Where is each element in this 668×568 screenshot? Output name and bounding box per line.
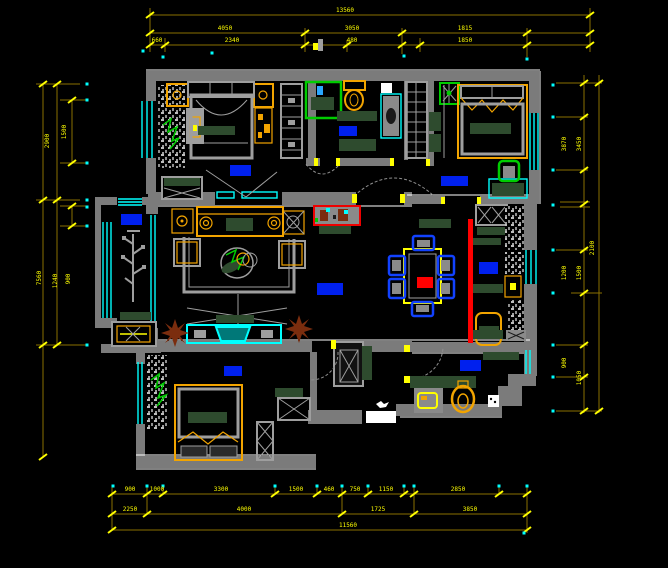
toilet-tank xyxy=(344,81,365,90)
dim-label: 900 xyxy=(125,486,136,493)
dim-label: 1500 xyxy=(289,486,304,493)
wall-hatch-texture xyxy=(505,206,524,250)
washer-box xyxy=(381,83,392,93)
armchair-left xyxy=(174,239,200,266)
dimensions-right: 3870 3450 2100 1200 1500 900 1050 xyxy=(552,75,604,414)
room-bedroom-right xyxy=(429,83,527,204)
entry-door-threshold xyxy=(366,411,396,423)
sofa-cushion xyxy=(226,218,253,231)
dim-label: 3050 xyxy=(345,25,360,32)
red-divider xyxy=(468,219,473,343)
room-bathroom xyxy=(306,81,434,196)
dim-label: 1815 xyxy=(458,25,473,32)
dim-label: 3870 xyxy=(561,136,568,151)
bird-icon xyxy=(376,401,389,408)
dimensions-left: 2900 1500 7560 1240 900 xyxy=(36,81,89,460)
room-master-bedroom xyxy=(158,82,302,199)
section-marker xyxy=(318,39,323,51)
dim-label: 1500 xyxy=(576,265,583,280)
dim-label: 2100 xyxy=(589,240,596,255)
tree-icon xyxy=(123,231,144,302)
dim-label: 13560 xyxy=(336,7,354,14)
bed-pillow xyxy=(188,412,227,423)
dim-label: 900 xyxy=(65,273,72,284)
dim-label: 480 xyxy=(347,37,358,44)
room-label-bathroom xyxy=(339,126,357,136)
dim-label: 1150 xyxy=(379,486,394,493)
room-pantry-column xyxy=(473,205,526,345)
floorplan-drawing: 13560 4050 3050 1815 660 2340 480 1850 2… xyxy=(0,0,668,568)
dim-label: 1000 xyxy=(150,486,165,493)
dim-label: 2850 xyxy=(451,486,466,493)
dim-label: 2900 xyxy=(44,133,51,148)
cad-canvas[interactable]: 13560 4050 3050 1815 660 2340 480 1850 2… xyxy=(0,0,668,568)
small-appliance xyxy=(488,395,499,407)
dim-label: 1850 xyxy=(458,37,473,44)
dim-label: 2340 xyxy=(225,37,240,44)
dim-label: 460 xyxy=(324,486,335,493)
plant-brown-left xyxy=(161,319,189,347)
dim-label: 3300 xyxy=(214,486,229,493)
dim-label: 1500 xyxy=(61,124,68,139)
dim-label: 660 xyxy=(152,37,163,44)
dining-table xyxy=(404,249,441,303)
dim-label: 1200 xyxy=(561,265,568,280)
dim-label: 1050 xyxy=(576,370,583,385)
wall-hatch-texture xyxy=(158,85,186,168)
room-balcony xyxy=(112,214,156,346)
room-bedroom-bottom xyxy=(146,355,310,460)
room-label-living xyxy=(317,283,343,295)
bed-pillow xyxy=(198,126,235,135)
room-dining xyxy=(389,219,473,343)
dim-label: 4000 xyxy=(237,506,252,513)
room-label-pantry xyxy=(479,262,498,274)
dim-label: 7560 xyxy=(36,270,43,285)
wall-hatch-texture xyxy=(146,355,167,430)
tv-icon xyxy=(216,327,250,341)
sink-basin xyxy=(386,108,396,124)
room-label-bedroom-bottom xyxy=(224,366,242,376)
dimensions-bottom: 900 1000 3300 1500 460 750 1150 2850 225… xyxy=(108,485,531,535)
wall-hatch-texture xyxy=(505,252,524,274)
room-label-bedroom-right xyxy=(441,176,468,186)
shoe-cabinet-top xyxy=(476,205,507,225)
dimensions-top: 13560 4050 3050 1815 660 2340 480 1850 xyxy=(142,7,595,61)
wardrobe-side xyxy=(257,422,273,460)
counter-top xyxy=(483,352,519,360)
dim-label: 900 xyxy=(561,357,568,368)
dim-label: 3450 xyxy=(576,136,583,151)
room-label-balcony xyxy=(121,214,142,225)
shower-head xyxy=(317,86,323,95)
armchair-right xyxy=(279,241,305,268)
dim-label: 750 xyxy=(350,486,361,493)
sideboard xyxy=(419,219,451,228)
dim-label: 1240 xyxy=(52,273,59,288)
dim-label: 3850 xyxy=(463,506,478,513)
toilet-icon xyxy=(345,90,363,110)
room-label-master-bedroom xyxy=(230,165,251,176)
bed-pillow xyxy=(470,123,511,134)
table-runner xyxy=(417,277,433,288)
dim-label: 1725 xyxy=(371,506,386,513)
shoe-cabinet xyxy=(334,342,363,386)
plant-brown-right xyxy=(285,315,313,343)
hall-shelf xyxy=(319,226,351,234)
dim-label: 11560 xyxy=(339,522,357,529)
tv-shelf xyxy=(216,315,254,323)
dim-label: 2250 xyxy=(123,506,138,513)
section-marker-flag xyxy=(313,43,318,50)
room-label-kitchen xyxy=(460,360,481,371)
nightstand-right xyxy=(254,84,273,107)
room-living xyxy=(161,207,343,347)
dim-label: 4050 xyxy=(218,25,233,32)
